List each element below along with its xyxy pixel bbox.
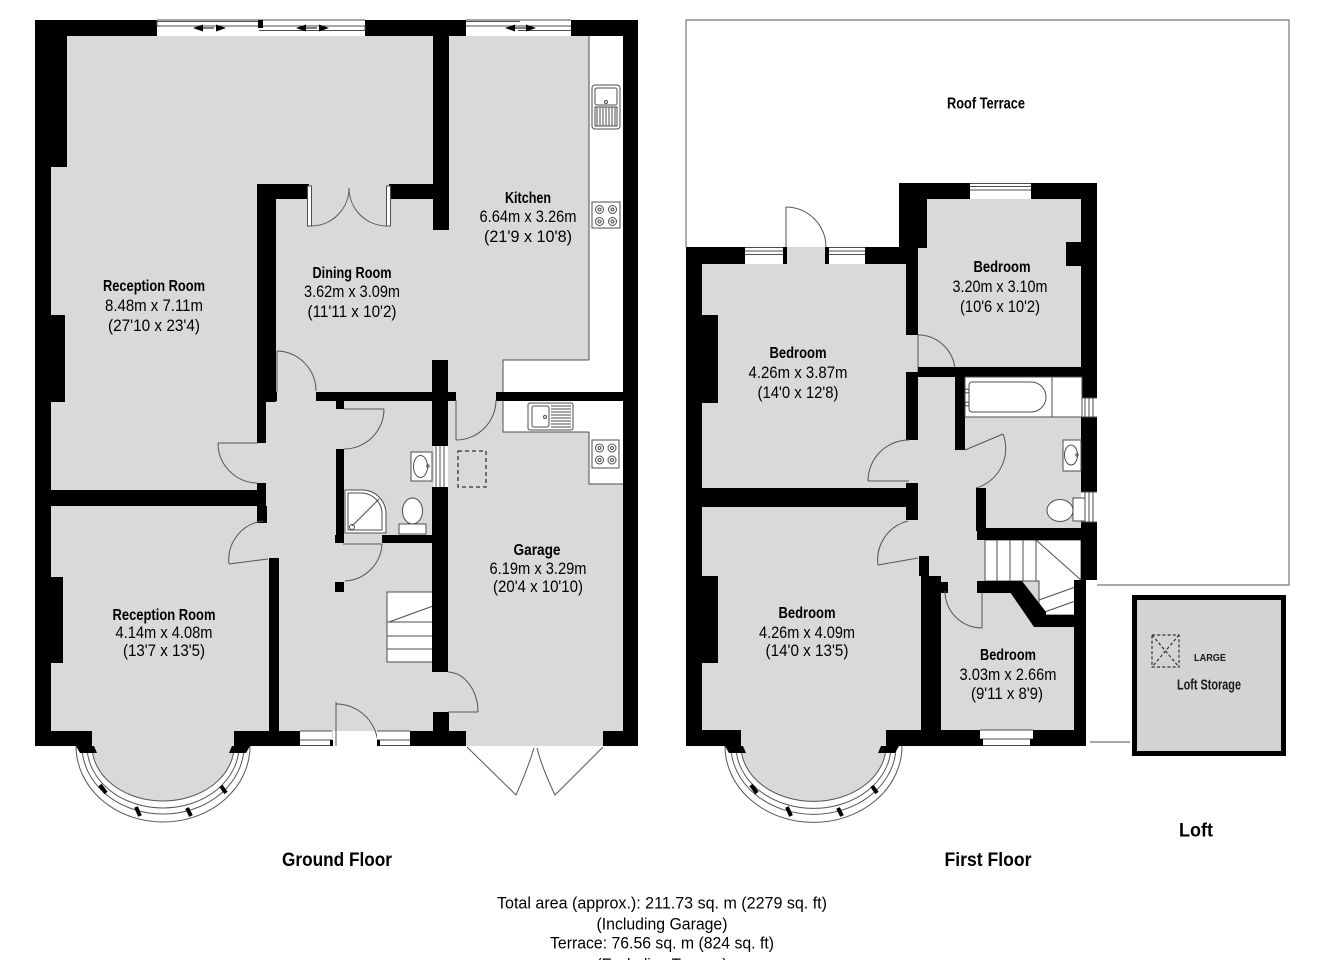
svg-text:(14'0 x 12'8): (14'0 x 12'8) bbox=[758, 384, 839, 402]
svg-text:3.62m x 3.09m: 3.62m x 3.09m bbox=[304, 283, 400, 301]
svg-text:(13'7 x 13'5): (13'7 x 13'5) bbox=[123, 642, 205, 660]
svg-text:First Floor: First Floor bbox=[945, 850, 1033, 871]
svg-text:(27'10 x 23'4): (27'10 x 23'4) bbox=[108, 317, 200, 335]
svg-text:8.48m x 7.11m: 8.48m x 7.11m bbox=[105, 297, 203, 315]
svg-text:(21'9 x 10'8): (21'9 x 10'8) bbox=[484, 228, 572, 246]
svg-text:Roof Terrace: Roof Terrace bbox=[947, 96, 1025, 113]
svg-text:(20'4 x 10'10): (20'4 x 10'10) bbox=[493, 578, 583, 596]
svg-text:Kitchen: Kitchen bbox=[505, 190, 551, 207]
svg-text:6.64m x 3.26m: 6.64m x 3.26m bbox=[480, 208, 577, 226]
svg-text:Bedroom: Bedroom bbox=[974, 259, 1031, 276]
svg-text:Bedroom: Bedroom bbox=[779, 605, 836, 622]
svg-text:Garage: Garage bbox=[514, 542, 561, 559]
svg-text:Reception Room: Reception Room bbox=[103, 278, 205, 295]
svg-text:Dining Room: Dining Room bbox=[313, 265, 392, 282]
svg-text:(10'6 x 10'2): (10'6 x 10'2) bbox=[960, 298, 1040, 316]
svg-text:(14'0 x 13'5): (14'0 x 13'5) bbox=[766, 642, 849, 660]
svg-text:4.26m x 4.09m: 4.26m x 4.09m bbox=[759, 624, 855, 642]
svg-text:Terrace: 76.56 sq. m (824 sq.: Terrace: 76.56 sq. m (824 sq. ft) bbox=[550, 934, 774, 953]
svg-text:(9'11 x 8'9): (9'11 x 8'9) bbox=[971, 685, 1043, 703]
svg-text:4.14m x 4.08m: 4.14m x 4.08m bbox=[116, 624, 213, 642]
svg-text:3.20m x 3.10m: 3.20m x 3.10m bbox=[953, 278, 1048, 296]
svg-text:Reception Room: Reception Room bbox=[113, 607, 216, 624]
svg-text:(11'11 x 10'2): (11'11 x 10'2) bbox=[308, 303, 397, 321]
svg-text:(Including Garage): (Including Garage) bbox=[597, 915, 728, 934]
svg-text:(Excluding Terrace): (Excluding Terrace) bbox=[597, 955, 728, 960]
svg-text:Bedroom: Bedroom bbox=[770, 345, 827, 362]
svg-text:Total area (approx.): 211.73 s: Total area (approx.): 211.73 sq. m (2279… bbox=[497, 894, 827, 913]
svg-text:LARGE: LARGE bbox=[1194, 652, 1226, 664]
svg-text:6.19m x 3.29m: 6.19m x 3.29m bbox=[490, 560, 587, 578]
svg-text:3.03m x 2.66m: 3.03m x 2.66m bbox=[960, 666, 1057, 684]
svg-text:Ground Floor: Ground Floor bbox=[282, 850, 393, 871]
svg-text:Loft: Loft bbox=[1179, 821, 1214, 842]
svg-text:4.26m x 3.87m: 4.26m x 3.87m bbox=[749, 364, 848, 382]
svg-text:Bedroom: Bedroom bbox=[980, 647, 1036, 664]
svg-text:Loft Storage: Loft Storage bbox=[1177, 677, 1241, 694]
